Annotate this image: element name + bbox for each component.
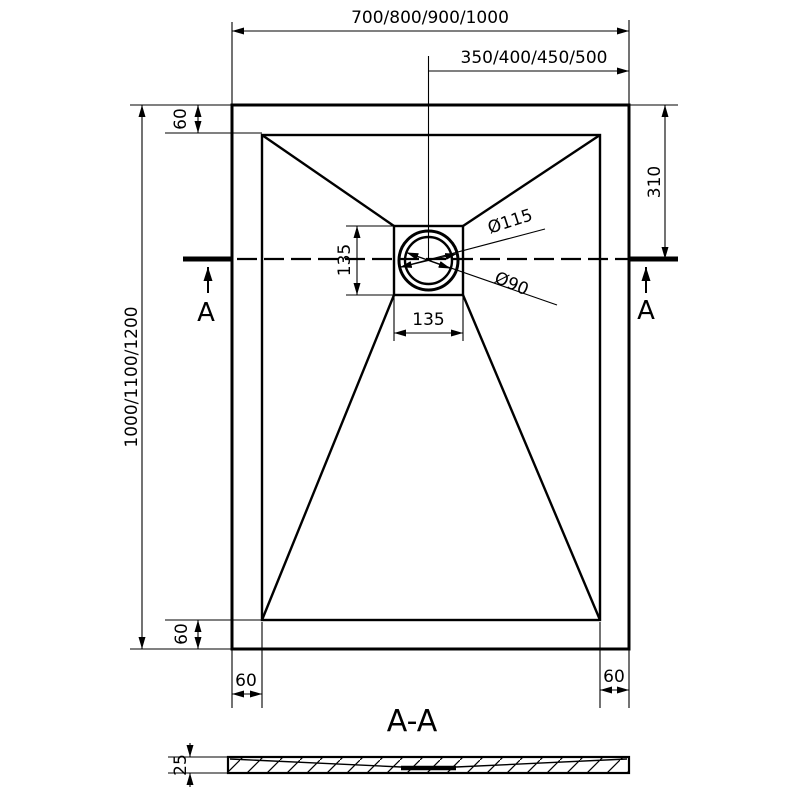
dimension-thickness: 25 [168, 743, 228, 787]
dimension-drain-square-height: 135 [335, 226, 394, 295]
dimension-rim-left-bottom: 60 [232, 622, 262, 708]
dimension-rim-top: 60 [165, 105, 262, 133]
dim-rim-left-text: 60 [235, 671, 257, 691]
dimension-drain-square-width: 135 [394, 295, 463, 341]
slope-crease-bottom-left [262, 295, 394, 620]
dimension-rim-right-bottom: 60 [600, 622, 629, 708]
dim-width-text: 700/800/900/1000 [351, 8, 509, 28]
tray-outer-edge [232, 105, 629, 649]
slope-crease-top-left [262, 135, 394, 226]
dim-rim-right-text: 60 [603, 667, 625, 687]
dim-drain-square-height-text: 135 [335, 244, 355, 276]
dimension-rim-bottom: 60 [165, 620, 262, 649]
section-cut-label-right: A [637, 296, 655, 326]
section-view: A-A 25 [168, 704, 629, 787]
dimension-length: 1000/1100/1200 [122, 105, 232, 649]
leader-line [400, 229, 545, 267]
dim-length-text: 1000/1100/1200 [122, 306, 142, 447]
diameter-arrow [429, 261, 451, 269]
plan-view [232, 56, 629, 649]
slope-crease-bottom-right [463, 295, 600, 620]
dim-center-text: 350/400/450/500 [461, 48, 608, 68]
dimension-drain-center: 350/400/450/500 [429, 48, 630, 71]
section-cut-label-left: A [197, 298, 215, 328]
section-title: A-A [387, 704, 438, 739]
dim-rim-top-text: 60 [171, 108, 191, 130]
dim-drain-offset-text: 310 [645, 166, 665, 198]
dim-drain-square-width-text: 135 [412, 310, 444, 330]
section-slab [228, 757, 629, 773]
slope-crease-top-right [463, 135, 600, 226]
dimension-drain-offset: 310 [629, 105, 678, 259]
dim-thickness-text: 25 [171, 754, 191, 776]
dimension-drain-waste-diameter: Ø90 [406, 253, 557, 306]
dim-rim-bottom-text: 60 [172, 623, 192, 645]
tray-inner-edge [262, 135, 600, 620]
shower-tray-technical-drawing: A A 700/800/900/1000 350/400/450/500 100… [0, 0, 800, 800]
drawing-svg: A A 700/800/900/1000 350/400/450/500 100… [0, 0, 800, 800]
dim-drain-waste-text: Ø90 [491, 268, 531, 300]
